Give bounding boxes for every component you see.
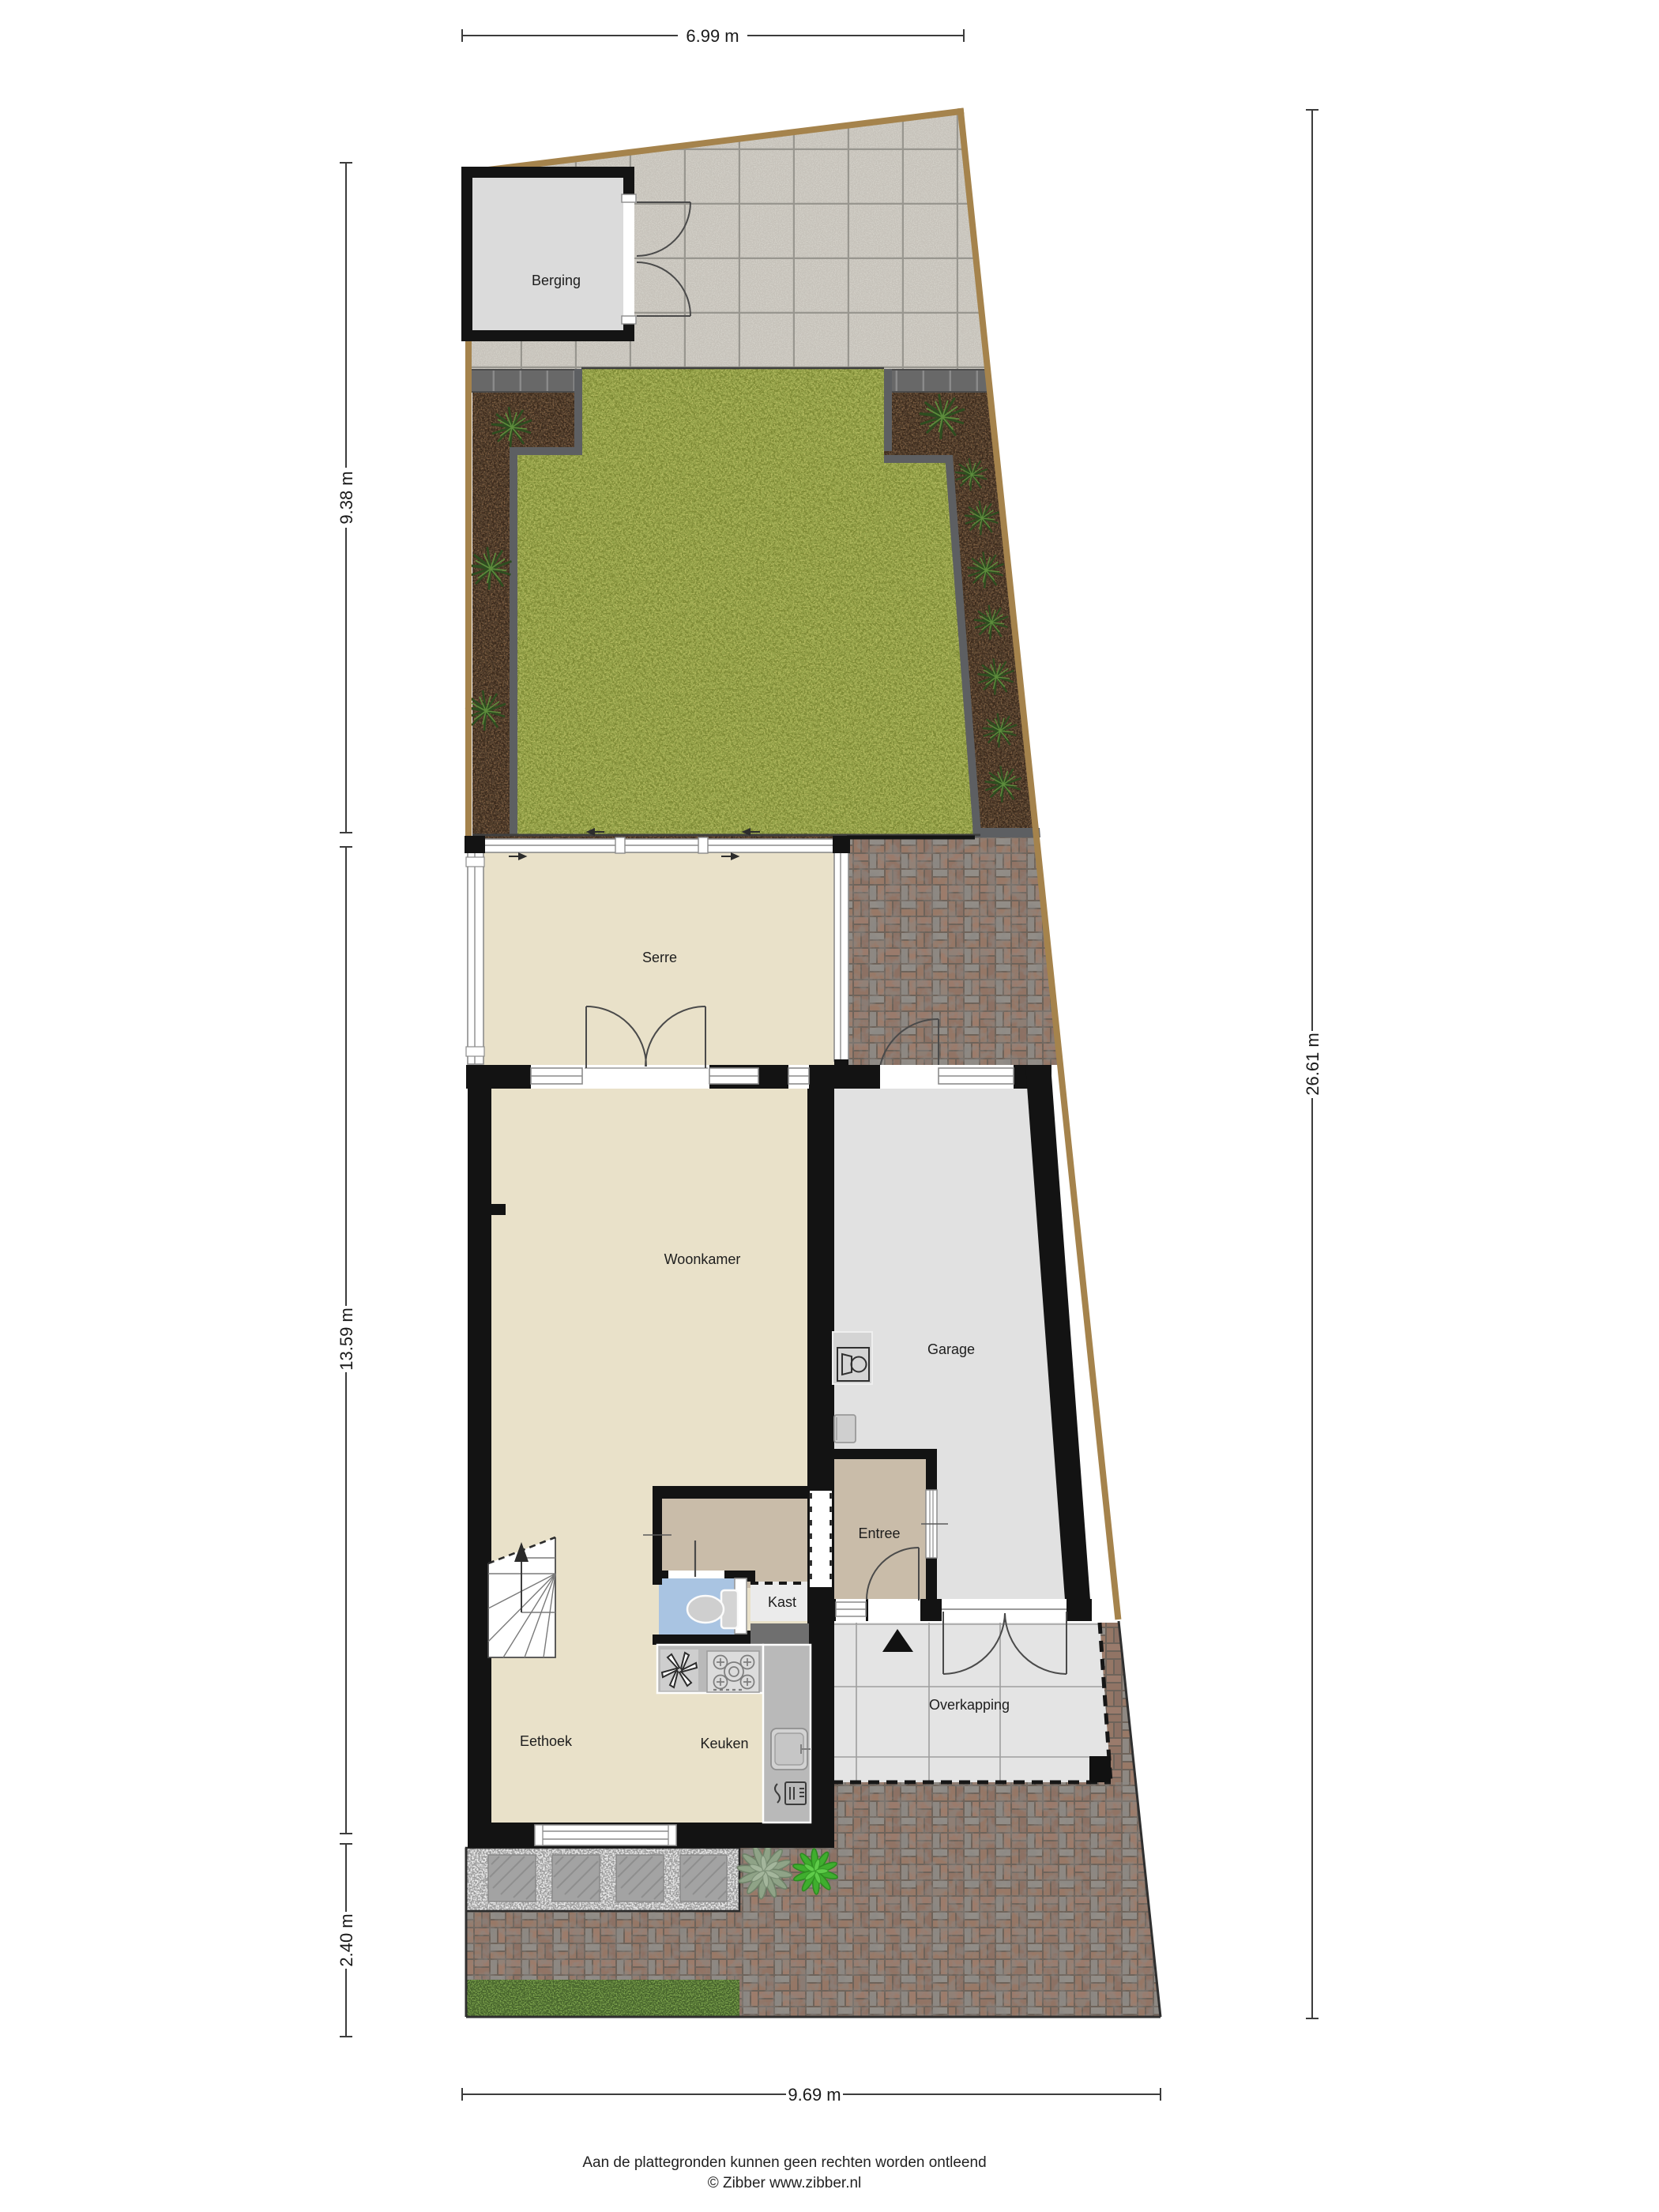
svg-text:© Zibber www.zibber.nl: © Zibber www.zibber.nl	[708, 2175, 862, 2191]
svg-text:Garage: Garage	[927, 1341, 975, 1357]
svg-text:9.38 m: 9.38 m	[337, 471, 356, 524]
svg-text:Woonkamer: Woonkamer	[664, 1251, 741, 1267]
svg-text:Serre: Serre	[642, 950, 677, 965]
svg-text:6.99 m: 6.99 m	[686, 26, 739, 46]
svg-text:Aan de plattegronden kunnen ge: Aan de plattegronden kunnen geen rechten…	[582, 2154, 986, 2171]
svg-text:Eethoek: Eethoek	[520, 1733, 573, 1749]
svg-text:Overkapping: Overkapping	[929, 1697, 1010, 1713]
svg-text:26.61 m: 26.61 m	[1303, 1033, 1322, 1096]
svg-text:13.59 m: 13.59 m	[337, 1307, 356, 1371]
svg-text:Kast: Kast	[768, 1594, 796, 1610]
svg-text:Entree: Entree	[858, 1525, 900, 1541]
svg-text:2.40 m: 2.40 m	[337, 1913, 356, 1966]
svg-text:9.69 m: 9.69 m	[788, 2085, 841, 2105]
svg-text:Berging: Berging	[532, 273, 581, 288]
svg-text:Keuken: Keuken	[700, 1736, 748, 1751]
